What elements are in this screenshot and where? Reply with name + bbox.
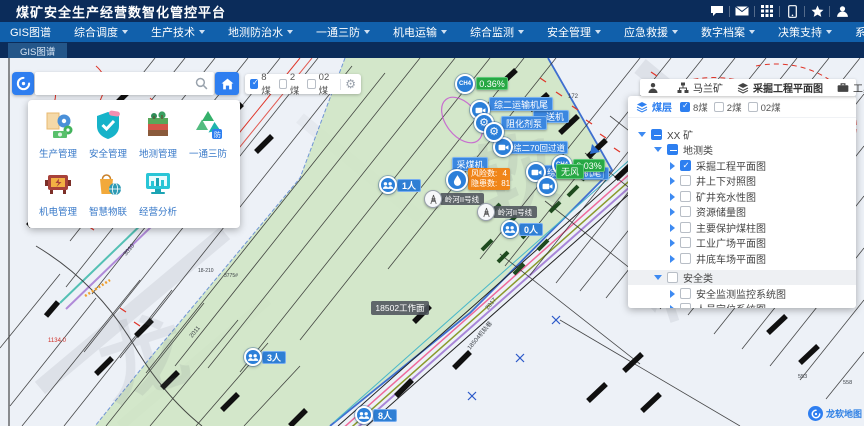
shearer-sensor-marker[interactable] — [446, 169, 468, 191]
checkbox[interactable] — [680, 288, 691, 299]
personnel-marker[interactable] — [244, 348, 262, 366]
app-label: 地测管理 — [139, 146, 177, 160]
people-count-label[interactable]: 1人 — [397, 179, 421, 192]
nav-label: GIS图谱 — [10, 24, 51, 40]
app-label: 安全管理 — [89, 146, 127, 160]
seam-filter-row: 煤层 8煤 2煤 02煤 — [628, 96, 856, 118]
chevron-down-icon[interactable] — [654, 275, 662, 280]
chevron-down-icon — [826, 30, 832, 34]
layer-settings-icon[interactable]: ⚙ — [345, 78, 356, 90]
map-label: 558 — [843, 380, 852, 386]
tree-node-safety-monitoring[interactable]: 安全监测监控系统图 — [628, 286, 856, 301]
pump-marker-2[interactable]: ⚙ — [484, 122, 504, 142]
nav-label: 系统管理 — [855, 24, 864, 40]
checkbox[interactable] — [680, 237, 691, 248]
tree-label: 安全类 — [683, 270, 713, 285]
checkbox-indeterminate[interactable] — [651, 129, 662, 140]
toggle-label: 02煤 — [761, 100, 781, 114]
chevron-right-icon[interactable] — [670, 162, 675, 170]
power-line-marker[interactable] — [424, 190, 442, 208]
nav-label: 应急救援 — [624, 24, 668, 40]
mobile-icon[interactable] — [780, 3, 804, 19]
main-nav: GIS图谱 综合调度 生产技术 地测防治水 一通三防 机电运输 综合监测 安全管… — [0, 22, 864, 42]
layer-tree-panel: 煤层 8煤 2煤 02煤 XX 矿 地测类 采掘工程平面图 井上下对照图 矿井充… — [628, 96, 856, 308]
vendor-logo-icon — [808, 406, 823, 421]
chevron-down-icon[interactable] — [638, 132, 646, 137]
people-count-label[interactable]: 0人 — [519, 223, 543, 236]
chevron-right-icon[interactable] — [670, 208, 675, 216]
people-icon — [247, 353, 259, 362]
nav-monitoring[interactable]: 综合监测 — [470, 24, 524, 40]
people-count-label[interactable]: 3人 — [262, 351, 286, 364]
tree-label: 资源储量图 — [696, 204, 746, 219]
checkbox[interactable] — [680, 303, 691, 308]
app-production[interactable]: 生产管理 — [33, 108, 83, 164]
chevron-down-icon — [199, 30, 205, 34]
chevron-right-icon[interactable] — [670, 305, 675, 309]
chevron-right-icon[interactable] — [670, 193, 675, 201]
ch4-icon: CH4 — [459, 81, 471, 87]
sitemap-icon — [677, 82, 689, 94]
map-label: 3775# — [224, 273, 238, 279]
app-iot[interactable]: 智慧物联 — [83, 166, 133, 222]
message-icon[interactable] — [705, 3, 729, 19]
nav-label: 综合监测 — [470, 24, 514, 40]
vendor-logo-text: 龙软地图 — [826, 407, 862, 420]
tools-button[interactable]: 工具 — [830, 80, 864, 95]
mine-name: 马兰矿 — [693, 80, 723, 95]
app-safety[interactable]: 安全管理 — [83, 108, 133, 164]
layers-icon — [636, 101, 648, 113]
nav-label: 综合调度 — [74, 24, 118, 40]
ch4-value-label[interactable]: 0.36% — [476, 77, 508, 90]
user-icon[interactable] — [830, 3, 854, 19]
tree-label: 井底车场平面图 — [696, 251, 766, 266]
machine-icon — [41, 166, 75, 200]
nav-safety[interactable]: 安全管理 — [547, 24, 601, 40]
production-icon — [41, 108, 75, 142]
toggle-label: 8煤 — [693, 100, 708, 114]
risk-label: 风险数: — [471, 169, 497, 179]
home-button[interactable] — [215, 72, 239, 95]
nav-system[interactable]: 系统管理 — [855, 24, 864, 40]
toggle-label: 2煤 — [290, 72, 301, 97]
power-line-marker[interactable] — [477, 203, 495, 221]
power-line-label[interactable]: 岭河II号线 — [440, 193, 484, 205]
tree-node-safety-group[interactable]: 安全类 — [628, 270, 856, 285]
nav-label: 决策支持 — [778, 24, 822, 40]
page-title: 煤矿安全生产经营数智化管控平台 — [16, 2, 226, 21]
chevron-right-icon[interactable] — [670, 255, 675, 263]
tree-label: 安全监测监控系统图 — [696, 286, 786, 301]
nav-ventilation[interactable]: 一通三防 — [316, 24, 370, 40]
tree-label: 地测类 — [683, 142, 713, 157]
star-icon[interactable] — [805, 3, 829, 19]
nav-label: 数字档案 — [701, 24, 745, 40]
tower-icon — [429, 194, 438, 205]
home-icon — [221, 78, 234, 90]
people-icon — [504, 225, 516, 234]
tab-bar: GIS图谱 — [0, 42, 864, 58]
tab-gis[interactable]: GIS图谱 — [8, 43, 67, 58]
titlebar-icons — [705, 0, 854, 22]
map-vendor-logo[interactable]: 龙软地图 — [808, 406, 862, 421]
app-logo[interactable] — [12, 72, 34, 95]
gear-icon: ⚙ — [489, 127, 499, 138]
swirl-logo-icon — [16, 76, 31, 91]
people-icon — [358, 411, 370, 420]
app-menu-panel: 生产管理 安全管理 地测管理 防 一通三防 机电管理 智慧物联 — [28, 100, 240, 228]
risk-stats-box[interactable]: 风险数:4 隐患数:81 — [468, 168, 510, 190]
app-ventilation[interactable]: 防 一通三防 — [183, 108, 233, 164]
risk-count-row: 风险数:4 — [471, 169, 507, 179]
wind-sensor-label[interactable]: 无风 — [556, 164, 584, 179]
nav-archives[interactable]: 数字档案 — [701, 24, 755, 40]
nav-electromechanical[interactable]: 机电运输 — [393, 24, 447, 40]
person-icon — [647, 82, 659, 94]
title-bar: 煤矿安全生产经营数智化管控平台 — [0, 0, 864, 22]
nav-label: 生产技术 — [151, 24, 195, 40]
tree-node-industrial-square[interactable]: 工业广场平面图 — [628, 235, 856, 250]
toggle-label: 02煤 — [319, 72, 335, 97]
tree-node-surface-contrast[interactable]: 井上下对照图 — [628, 173, 856, 188]
chevron-down-icon — [364, 30, 370, 34]
tree-node-shaft-yard[interactable]: 井底车场平面图 — [628, 251, 856, 266]
toggle-seam-8[interactable]: 8煤 — [250, 72, 273, 97]
map-label: 18-210 — [198, 268, 214, 274]
tree-node-geology-group[interactable]: 地测类 — [628, 142, 856, 157]
svg-text:防: 防 — [214, 130, 221, 139]
checkbox-checked[interactable] — [680, 102, 690, 112]
chevron-down-icon — [672, 30, 678, 34]
workface-label[interactable]: 18502工作面 — [371, 301, 429, 315]
toggle-label: 2煤 — [727, 100, 742, 114]
seam-layer-toggle-bar: 8煤 2煤 02煤 ⚙ — [245, 74, 361, 94]
tree-label: 人员定位系统图 — [696, 301, 766, 308]
camera-icon — [531, 168, 542, 177]
chevron-right-icon[interactable] — [670, 239, 675, 247]
mail-icon[interactable] — [730, 3, 754, 19]
tree-node-pillar[interactable]: 主要保护煤柱图 — [628, 220, 856, 235]
nav-decision[interactable]: 决策支持 — [778, 24, 832, 40]
tower-icon — [482, 207, 491, 218]
checkbox-indeterminate[interactable] — [667, 144, 678, 155]
chevron-right-icon[interactable] — [670, 290, 675, 298]
user-location-button[interactable] — [640, 82, 670, 94]
camera-marker[interactable] — [537, 176, 557, 196]
layers-icon — [737, 82, 749, 94]
chevron-down-icon — [595, 30, 601, 34]
divider — [340, 79, 341, 90]
chevron-down-icon — [749, 30, 755, 34]
panel-seam-8[interactable]: 8煤 — [680, 100, 708, 114]
gis-map[interactable]: 龙 软 科 172 2017 3010 2011 18504机轨巷 18-210… — [0, 58, 864, 426]
hazard-label: 隐患数: — [471, 179, 497, 189]
checkbox[interactable] — [307, 79, 315, 89]
app-label: 生产管理 — [39, 146, 77, 160]
nav-label: 地测防治水 — [228, 24, 283, 40]
tree-node-resources[interactable]: 资源储量图 — [628, 204, 856, 219]
app-label: 一通三防 — [189, 146, 227, 160]
tree-node-mining-plan[interactable]: 采掘工程平面图 — [628, 158, 856, 173]
droplet-icon — [453, 175, 462, 186]
people-icon — [382, 181, 394, 190]
nav-label: 一通三防 — [316, 24, 360, 40]
application-window: 煤矿安全生产经营数智化管控平台 GIS图谱 综合调度 生产技术 地测防治水 一通… — [0, 0, 864, 426]
toggle-label: 8煤 — [261, 72, 272, 97]
tools-label: 工具 — [853, 80, 864, 95]
panel-seam-2[interactable]: 2煤 — [714, 100, 742, 114]
checkbox[interactable] — [667, 272, 678, 283]
checkbox[interactable] — [680, 191, 691, 202]
hazard-value: 81 — [501, 179, 510, 189]
chevron-right-icon[interactable] — [670, 177, 675, 185]
active-map-name: 采掘工程平面图 — [753, 80, 823, 95]
app-survey[interactable]: 地测管理 — [133, 108, 183, 164]
personnel-marker[interactable] — [355, 406, 373, 424]
checkbox[interactable] — [680, 253, 691, 264]
app-label: 机电管理 — [39, 204, 77, 218]
chevron-down-icon — [122, 30, 128, 34]
nav-label: 机电运输 — [393, 24, 437, 40]
app-label: 智慧物联 — [89, 204, 127, 218]
people-count-label[interactable]: 8人 — [373, 409, 397, 422]
chevron-down-icon — [441, 30, 447, 34]
recycle-arrows-icon: 防 — [191, 108, 225, 142]
nav-gis[interactable]: GIS图谱 — [10, 24, 51, 40]
tree-label: 主要保护煤柱图 — [696, 220, 766, 235]
ch4-sensor-marker[interactable]: CH4 — [455, 74, 475, 94]
hazard-count-row: 隐患数:81 — [471, 179, 507, 189]
app-analysis[interactable]: 经营分析 — [133, 166, 183, 222]
app-label: 经营分析 — [139, 204, 177, 218]
tree-node-mine[interactable]: XX 矿 — [628, 127, 856, 142]
panel-seam-02[interactable]: 02煤 — [748, 100, 781, 114]
tree-label: XX 矿 — [667, 127, 693, 142]
nav-geology-water[interactable]: 地测防治水 — [228, 24, 293, 40]
checkbox[interactable] — [279, 79, 287, 89]
survey-point-label: 1134.0 — [48, 338, 67, 344]
search-input[interactable] — [35, 72, 195, 95]
toggle-seam-02[interactable]: 02煤 — [307, 72, 334, 97]
checkbox[interactable] — [680, 175, 691, 186]
elevation-label: 172 — [568, 94, 579, 100]
checkbox[interactable] — [680, 222, 691, 233]
tree-node-water-filling[interactable]: 矿井充水性图 — [628, 189, 856, 204]
nav-label: 安全管理 — [547, 24, 591, 40]
tree-label: 采掘工程平面图 — [696, 158, 766, 173]
toolbox-icon — [837, 82, 849, 93]
nav-dispatch[interactable]: 综合调度 — [74, 24, 128, 40]
camera-icon — [498, 143, 509, 152]
nav-emergency[interactable]: 应急救援 — [624, 24, 678, 40]
safety-shield-icon — [91, 108, 125, 142]
chevron-down-icon — [518, 30, 524, 34]
equipment-label[interactable]: 综二运输机尾 — [489, 97, 553, 111]
personnel-marker[interactable] — [501, 220, 519, 238]
equipment-label[interactable]: 综二70回过道 — [510, 141, 568, 154]
search-icon[interactable] — [195, 77, 208, 90]
chevron-right-icon[interactable] — [670, 224, 675, 232]
risk-value: 4 — [503, 169, 507, 179]
checkbox-checked[interactable] — [680, 160, 691, 171]
map-label: 553 — [798, 374, 807, 380]
active-map-selector[interactable]: 采掘工程平面图 — [730, 80, 830, 95]
app-electromechanical[interactable]: 机电管理 — [33, 166, 83, 222]
tree-node-personnel-location[interactable]: 人员定位系统图 — [628, 301, 856, 308]
checkbox[interactable] — [748, 102, 758, 112]
geology-layers-icon — [141, 108, 175, 142]
analysis-monitor-icon — [141, 166, 175, 200]
tree-label: 井上下对照图 — [696, 173, 756, 188]
map-toolbar: 马兰矿 采掘工程平面图 工具 — [640, 79, 856, 96]
tree-label: 矿井充水性图 — [696, 189, 756, 204]
checkbox-checked[interactable] — [250, 79, 258, 89]
nav-production-tech[interactable]: 生产技术 — [151, 24, 205, 40]
checkbox[interactable] — [714, 102, 724, 112]
tree-label: 工业广场平面图 — [696, 235, 766, 250]
toggle-seam-2[interactable]: 2煤 — [279, 72, 302, 97]
apps-grid-icon[interactable] — [755, 3, 779, 19]
chevron-down-icon[interactable] — [654, 147, 662, 152]
power-line-label[interactable]: 岭河II号线 — [493, 206, 537, 218]
seam-row-label: 煤层 — [652, 99, 672, 114]
smart-iot-icon — [91, 166, 125, 200]
camera-icon — [542, 182, 553, 191]
mine-selector[interactable]: 马兰矿 — [670, 80, 730, 95]
map-search-bar — [35, 72, 214, 95]
chevron-down-icon — [287, 30, 293, 34]
equipment-label[interactable]: 阻化剂泵 — [501, 116, 547, 130]
personnel-marker[interactable] — [379, 176, 397, 194]
checkbox[interactable] — [680, 206, 691, 217]
